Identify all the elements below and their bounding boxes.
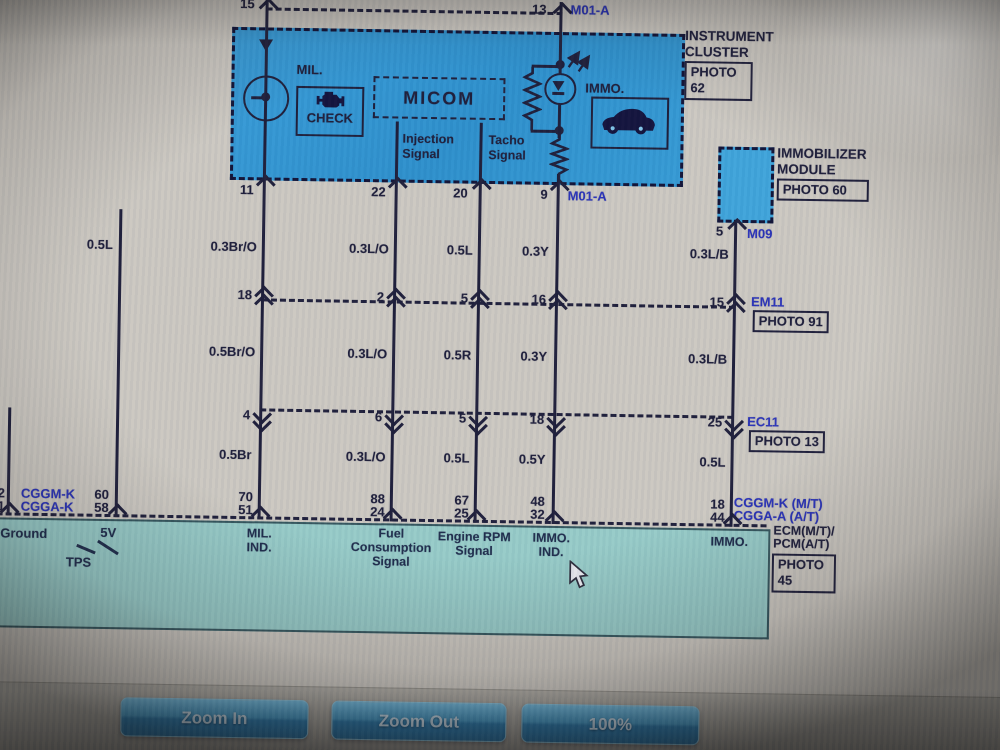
signal-name: Engine RPM Signal	[426, 530, 522, 559]
wire-gauge: 0.3Y	[496, 243, 549, 259]
connector-pin-icon	[383, 508, 401, 520]
connector-pin-icon	[724, 413, 742, 425]
signal-name: Ground	[0, 525, 47, 541]
connector-pin-icon	[727, 219, 745, 231]
connector-label: M01-A	[570, 2, 609, 18]
connector-pin-icon	[723, 514, 741, 526]
wire-gauge: 0.3L/B	[669, 246, 729, 262]
immo-car-box	[590, 97, 669, 150]
connector-pin-icon	[545, 511, 563, 523]
pin-number: 5	[707, 223, 723, 238]
check-label: CHECK	[300, 110, 360, 127]
em11-photo-ref: PHOTO 91	[753, 310, 829, 333]
connector-pin-icon	[256, 175, 274, 187]
cluster-photo-ref: PHOTO 62	[684, 61, 753, 101]
em11-dashed-line	[262, 298, 735, 308]
immobilizer-name: IMMOBILIZER	[777, 145, 866, 161]
immo-wire	[729, 219, 737, 527]
wire-gauge: 0.3L/O	[329, 345, 387, 361]
connector-label: CGGA-A (A/T)	[734, 508, 820, 524]
led-triangle	[552, 81, 564, 91]
wire-gauge: 0.5Br	[191, 446, 251, 462]
wire-gauge: 0.3Br/O	[197, 238, 257, 254]
zoom-out-button[interactable]: Zoom Out	[331, 701, 507, 743]
pin-number: 9	[530, 187, 548, 202]
connector-label: M09	[747, 226, 773, 241]
tacho-signal-label: Tacho Signal	[488, 133, 526, 164]
pin-number: 4	[216, 407, 250, 423]
signal-name: TPS	[66, 554, 92, 569]
pin-number: 15	[231, 0, 255, 11]
top-connector-dashed-line	[267, 7, 563, 15]
connector-label: EC11	[747, 414, 779, 429]
connector-pin-icon	[388, 177, 406, 189]
connector-pin-icon	[467, 510, 485, 522]
signal-name: IMMO.	[696, 534, 762, 549]
wire-gauge: 0.5L	[61, 236, 113, 252]
connector-pin-icon	[548, 291, 566, 303]
connector-pin-icon	[254, 286, 272, 298]
immobilizer-photo-ref: PHOTO 60	[777, 178, 869, 202]
wiring-diagram-viewer: 15 13 M01-A MIL. CHECK MICOM Injection S…	[0, 0, 1000, 750]
pin-number: 11	[230, 182, 254, 197]
ec11-dashed-line	[260, 408, 733, 418]
pin-number: 15	[688, 294, 724, 310]
light-rays-icon	[566, 44, 596, 72]
immo-label: IMMO.	[585, 80, 624, 96]
zoom-in-button[interactable]: Zoom In	[120, 697, 309, 739]
ecm-photo-ref: PHOTO 45	[771, 553, 836, 593]
signal-name: IMMO. IND.	[518, 531, 584, 560]
pin-number: 6	[348, 409, 382, 425]
pin-number: 18	[216, 287, 252, 303]
wire-gauge: 0.5R	[419, 347, 471, 363]
resistor-icon	[522, 66, 543, 130]
pin-number: 18	[498, 411, 544, 427]
connector-pin-icon	[251, 506, 269, 518]
wire-gauge: 0.3L/B	[667, 351, 727, 367]
wire-gauge: 0.3L/O	[327, 448, 385, 464]
immobilizer-name: MODULE	[777, 161, 836, 177]
connector-pin-icon	[108, 504, 126, 516]
connector-pin-icon	[472, 179, 490, 191]
signal-name: Fuel Consumption Signal	[346, 527, 437, 570]
five-v-wire	[115, 209, 123, 517]
check-engine-icon	[312, 90, 348, 108]
mouse-cursor	[567, 560, 589, 590]
pin-number: 16	[500, 291, 546, 307]
current-direction-arrow-icon	[259, 39, 273, 51]
connector-pin-icon	[0, 502, 18, 514]
wire-gauge: 0.5Br/O	[187, 343, 255, 359]
wire-gauge: 0.3Y	[494, 348, 547, 364]
connector-label: EM11	[751, 294, 784, 310]
wire-gauge: 0.5L	[665, 454, 725, 470]
led-bar	[552, 92, 564, 95]
wire-gauge: 0.3L/O	[331, 240, 389, 256]
ecm-name: PCM(A/T)	[773, 536, 829, 551]
bulb-filament-dot	[261, 92, 270, 101]
cluster-name: CLUSTER	[685, 44, 749, 60]
car-icon	[597, 100, 658, 139]
immo-ind-wire-lower	[552, 174, 560, 524]
pin-number: 5	[430, 410, 466, 426]
viewer-toolbar: Zoom In Zoom Out 100%	[0, 681, 1000, 750]
connector-pin-icon	[252, 405, 270, 417]
connector-label: M01-A	[568, 188, 607, 204]
connector-pin-icon	[546, 410, 564, 422]
connector-pin-icon	[384, 407, 402, 419]
bulb-filament-line	[251, 96, 262, 99]
ec11-photo-ref: PHOTO 13	[749, 430, 825, 453]
ground-wire	[7, 407, 12, 515]
connector-pin-icon	[470, 290, 488, 302]
pin-number: 25	[686, 414, 722, 430]
check-engine-box: CHECK	[296, 86, 365, 137]
injection-signal-label: Injection Signal	[402, 132, 454, 163]
cluster-name: INSTRUMENT	[685, 28, 774, 44]
connector-pin-icon	[726, 294, 744, 306]
wire-gauge: 0.5L	[417, 450, 469, 466]
pin-number: 22	[362, 184, 386, 199]
zoom-level-button[interactable]: 100%	[521, 704, 700, 746]
signal-name: MIL. IND.	[234, 527, 284, 555]
junction-dot	[556, 60, 565, 69]
pin-number: 2	[350, 289, 384, 305]
signal-name: 5V	[100, 525, 116, 540]
resistor-icon	[549, 134, 570, 180]
connector-pin-icon	[468, 409, 486, 421]
connector-pin-icon	[386, 288, 404, 300]
immobilizer-module-box	[717, 147, 774, 224]
pin-number: 20	[444, 185, 468, 200]
connector-pin-icon	[550, 180, 568, 192]
micom-box: MICOM	[373, 76, 506, 120]
pin-number: 5	[432, 290, 468, 306]
wire-gauge: 0.5L	[421, 242, 473, 258]
mil-label: MIL.	[297, 62, 323, 77]
pin-number: 13	[522, 1, 546, 16]
wire-gauge: 0.5Y	[492, 451, 545, 467]
